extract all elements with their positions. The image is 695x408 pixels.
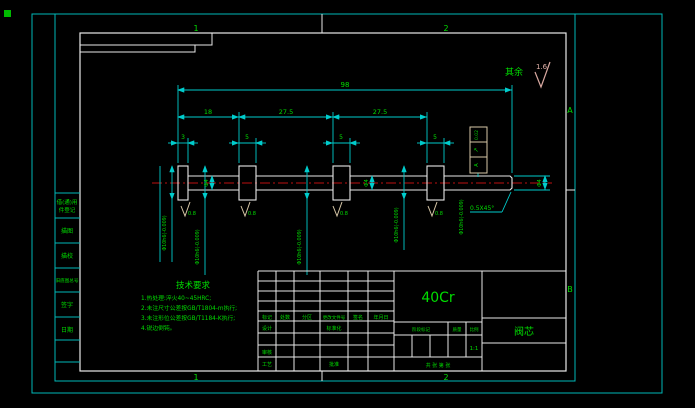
tb-material: 40Cr <box>421 290 455 306</box>
default-roughness-note: 其余 1.6 <box>505 62 550 87</box>
zone-bottom-1: 1 <box>193 373 198 382</box>
fcf-tolerance-value: 0.02 <box>474 130 480 140</box>
roughness-value-2: 0.8 <box>248 211 256 217</box>
margin-borrow-label-2: 件登记 <box>59 206 76 214</box>
margin-borrow-label-1: 借(通)用 <box>57 198 78 206</box>
roughness-value-3: 0.8 <box>340 211 348 217</box>
tech-req-line-1: 1.热处理:淬火40~45HRC; <box>141 294 211 302</box>
margin-signature-label: 签字 <box>61 301 73 309</box>
dim-dia4-a: Φ4 <box>204 179 210 187</box>
margin-check-label: 描校 <box>61 252 73 260</box>
tb-design-label: 设计 <box>262 325 272 332</box>
tech-req-line-3: 3.未注形位公差按GB/T1184-K执行; <box>141 314 235 322</box>
dim-chamfer: 0.5X45° <box>470 205 494 212</box>
technical-requirements: 技术要求 1.热处理:淬火40~45HRC; 2.未注尺寸公差按GB/T1804… <box>141 280 237 332</box>
dim-5-c: 5 <box>433 134 437 141</box>
dim-5-a: 5 <box>245 134 249 141</box>
zone-right-b: B <box>567 285 573 294</box>
default-roughness-value: 1.6 <box>536 63 548 71</box>
drawing-canvas[interactable]: 1 2 1 2 A B 借(通)用 件登记 描图 描校 旧底图总号 签字 日期 <box>0 0 695 408</box>
dim-dia10-2: Φ10h6(-0.009) <box>195 229 201 264</box>
tb-scale-value: 1:1 <box>470 346 479 352</box>
fcf-datum-letter: A <box>474 163 480 167</box>
roughness-value-4: 0.8 <box>435 211 443 217</box>
zone-right-a: A <box>567 106 573 115</box>
tb-header-zone: 分区 <box>302 314 312 321</box>
margin-trace-label: 描图 <box>61 227 73 235</box>
dim-dia4-end: Φ4 <box>537 179 543 187</box>
tb-header-count: 处数 <box>280 314 290 321</box>
dim-overall: 98 <box>341 81 350 89</box>
dim-dia4-b: Φ4 <box>364 179 370 187</box>
cad-viewport[interactable]: 1 2 1 2 A B 借(通)用 件登记 描图 描校 旧底图总号 签字 日期 <box>0 0 695 408</box>
dim-27-5-b: 27.5 <box>373 108 387 116</box>
sheet-borders <box>4 10 662 393</box>
default-roughness-prefix: 其余 <box>505 66 523 78</box>
dim-5-b: 5 <box>339 134 343 141</box>
roughness-value-1: 0.8 <box>188 211 196 217</box>
tb-sheets: 共 张 第 张 <box>426 362 451 369</box>
tb-header-mark: 标记 <box>262 314 272 321</box>
tb-part-name: 阀芯 <box>514 325 534 338</box>
dim-18: 18 <box>204 108 212 116</box>
tb-check-label: 审核 <box>262 349 272 356</box>
tb-approve-label: 批准 <box>329 361 339 368</box>
zone-bottom-2: 2 <box>443 373 448 382</box>
dim-3: 3 <box>181 134 185 141</box>
dim-dia10-1: Φ10h6(-0.009) <box>162 215 168 250</box>
tb-standardization-label: 标准化 <box>326 325 341 332</box>
tb-process-label: 工艺 <box>262 362 272 368</box>
feature-control-frame: 0.02 ↗ A <box>470 127 487 173</box>
tech-req-line-2: 2.未注尺寸公差按GB/T1804-m执行; <box>141 304 237 312</box>
dimension-lines <box>160 85 550 275</box>
margin-old-original-label: 旧底图总号 <box>56 277 79 284</box>
left-margin-block: 借(通)用 件登记 描图 描校 旧底图总号 签字 日期 <box>55 193 80 362</box>
tb-scale-label: 比例 <box>470 326 479 333</box>
tb-stage-label: 阶段标记 <box>412 326 430 333</box>
fcf-runout-symbol: ↗ <box>473 147 480 152</box>
dim-dia10-3: Φ10h6(-0.009) <box>297 229 303 264</box>
corner-grip <box>4 10 11 17</box>
tb-weight-label: 质量 <box>453 326 462 333</box>
tb-header-date: 年月日 <box>373 314 388 321</box>
zone-top-2: 2 <box>443 24 448 33</box>
dim-dia10-5: Φ10h6(-0.009) <box>459 199 465 234</box>
tech-req-title: 技术要求 <box>176 280 211 291</box>
tb-header-file: 更改文件号 <box>323 314 346 321</box>
tb-header-sign: 签名 <box>353 314 363 321</box>
dim-27-5-a: 27.5 <box>279 108 293 116</box>
title-block: 标记 处数 分区 更改文件号 签名 年月日 设计 标准化 审核 工艺 批准 40… <box>258 271 566 371</box>
zone-top-1: 1 <box>193 24 198 33</box>
dim-dia10-4: Φ10h6(-0.009) <box>394 207 400 242</box>
margin-date-label: 日期 <box>61 326 73 334</box>
tech-req-line-4: 4.锐边倒钝。 <box>141 324 176 332</box>
